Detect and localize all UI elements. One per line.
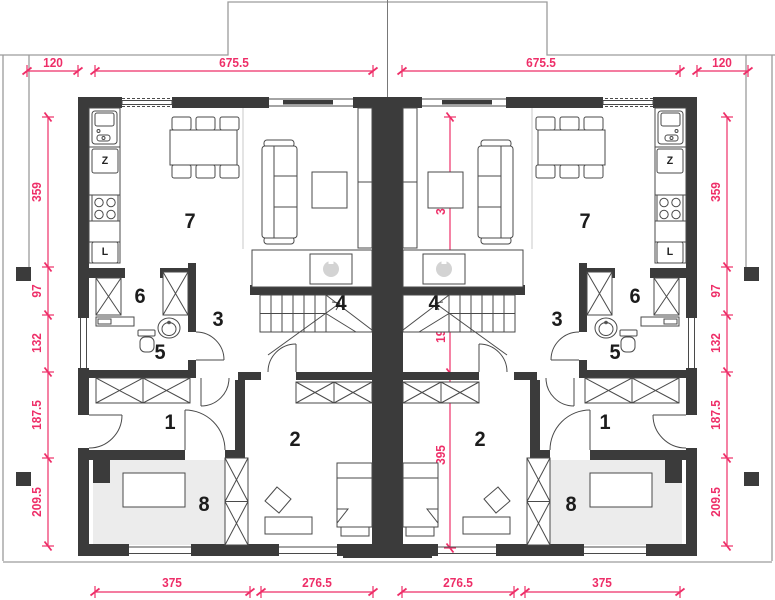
room-label-stairs: 4 bbox=[335, 292, 346, 316]
canopy-post bbox=[744, 267, 759, 281]
fireplace bbox=[252, 250, 372, 287]
fireplace bbox=[403, 250, 523, 287]
dishwasher-label: Z bbox=[102, 155, 108, 167]
canopy-post bbox=[744, 472, 759, 486]
dim-label: 359 bbox=[709, 182, 723, 202]
door-arc bbox=[268, 344, 296, 372]
desk-chair bbox=[484, 487, 510, 513]
stove bbox=[657, 195, 683, 221]
window bbox=[123, 544, 197, 556]
kitchen-sink bbox=[658, 111, 683, 144]
tv-cabinet bbox=[358, 108, 372, 248]
wc-shelf bbox=[96, 317, 134, 326]
door-arc bbox=[550, 410, 590, 450]
desk-chair bbox=[265, 487, 291, 513]
kitchen-sink bbox=[92, 111, 117, 144]
door-arc bbox=[546, 378, 574, 406]
door-arc bbox=[479, 344, 507, 372]
dim-label: 675.5 bbox=[219, 56, 249, 70]
dining-table bbox=[536, 117, 605, 178]
dim-label: 209.5 bbox=[30, 487, 44, 517]
desk bbox=[265, 517, 312, 534]
dim-label: 120 bbox=[712, 56, 732, 70]
wardrobe bbox=[96, 378, 190, 403]
toilet bbox=[620, 330, 637, 352]
dim-label: 120 bbox=[43, 56, 63, 70]
dim-label: 675.5 bbox=[526, 56, 556, 70]
door-arc bbox=[196, 332, 224, 360]
room-label-hall: 1 bbox=[599, 411, 610, 435]
garage-table bbox=[123, 473, 185, 507]
room-label-garage: 8 bbox=[565, 493, 576, 517]
wardrobe bbox=[296, 382, 372, 403]
dim-label: 132 bbox=[709, 333, 723, 353]
window bbox=[603, 99, 653, 107]
coffee-table bbox=[428, 172, 463, 208]
staircase bbox=[260, 295, 372, 355]
washbasin bbox=[595, 318, 617, 338]
room-label-living: 7 bbox=[579, 210, 590, 234]
room-label-living: 7 bbox=[184, 210, 195, 234]
room-label-hall: 1 bbox=[164, 411, 175, 435]
dimension-line-left bbox=[42, 113, 54, 551]
stove bbox=[92, 195, 118, 221]
unit-left: 7 6 5 3 4 1 2 8 Z L bbox=[78, 97, 388, 556]
entrance-door bbox=[89, 415, 122, 448]
room-label-bedroom: 2 bbox=[474, 428, 485, 452]
staircase bbox=[403, 295, 515, 355]
garage-table bbox=[590, 473, 652, 507]
window bbox=[122, 99, 172, 107]
wardrobe bbox=[527, 458, 550, 545]
dim-label: 187.5 bbox=[709, 400, 723, 430]
room-label-bedroom: 2 bbox=[289, 428, 300, 452]
fridge-label: L bbox=[667, 246, 673, 258]
bed bbox=[403, 463, 438, 536]
room-label-wc: 5 bbox=[609, 341, 620, 365]
dim-label: 97 bbox=[709, 284, 723, 297]
bed bbox=[337, 463, 372, 536]
wc-shelf bbox=[641, 317, 679, 326]
coffee-table bbox=[312, 172, 347, 208]
canopy-post bbox=[16, 472, 31, 486]
window bbox=[432, 544, 502, 556]
room-label-stairs: 4 bbox=[428, 292, 439, 316]
window bbox=[578, 544, 652, 556]
room-label-corridor: 3 bbox=[551, 308, 562, 332]
unit-plan-svg bbox=[78, 97, 388, 556]
window bbox=[262, 97, 360, 108]
dishwasher-label: Z bbox=[667, 155, 673, 167]
dim-label: 375 bbox=[592, 576, 612, 590]
sofa bbox=[478, 140, 513, 244]
canopy-post bbox=[16, 267, 31, 281]
desk bbox=[463, 517, 510, 534]
door-arc bbox=[185, 410, 225, 450]
tv-cabinet bbox=[403, 108, 417, 248]
wardrobe bbox=[585, 378, 679, 403]
fridge-label: L bbox=[102, 246, 108, 258]
dining-table bbox=[170, 117, 239, 178]
dim-label: 359 bbox=[30, 182, 44, 202]
unit-plan-svg bbox=[387, 97, 697, 556]
room-label-pantry: 6 bbox=[134, 285, 145, 309]
door-arc bbox=[201, 378, 229, 406]
washbasin bbox=[158, 318, 180, 338]
wardrobe bbox=[403, 382, 479, 403]
window bbox=[415, 97, 513, 108]
sofa bbox=[262, 140, 297, 244]
dimension-line-right bbox=[721, 113, 733, 551]
entrance-door bbox=[653, 415, 686, 448]
wardrobe bbox=[225, 458, 248, 545]
dim-label: 276.5 bbox=[443, 576, 473, 590]
dim-label: 209.5 bbox=[709, 487, 723, 517]
unit-right: 7 6 5 3 4 1 2 8 Z L bbox=[387, 97, 697, 556]
window bbox=[689, 318, 695, 368]
dim-label: 97 bbox=[30, 284, 44, 297]
room-label-pantry: 6 bbox=[629, 285, 640, 309]
dim-label: 187.5 bbox=[30, 400, 44, 430]
room-label-corridor: 3 bbox=[212, 308, 223, 332]
room-label-wc: 5 bbox=[154, 341, 165, 365]
window bbox=[273, 544, 343, 556]
floor-plan: 120 675.5 675.5 120 375 276.5 276.5 375 … bbox=[0, 0, 775, 600]
dim-label: 276.5 bbox=[302, 576, 332, 590]
dim-label: 375 bbox=[162, 576, 182, 590]
window bbox=[81, 318, 87, 368]
door-arc bbox=[551, 332, 579, 360]
room-label-garage: 8 bbox=[198, 493, 209, 517]
toilet bbox=[138, 330, 155, 352]
dim-label: 132 bbox=[30, 333, 44, 353]
